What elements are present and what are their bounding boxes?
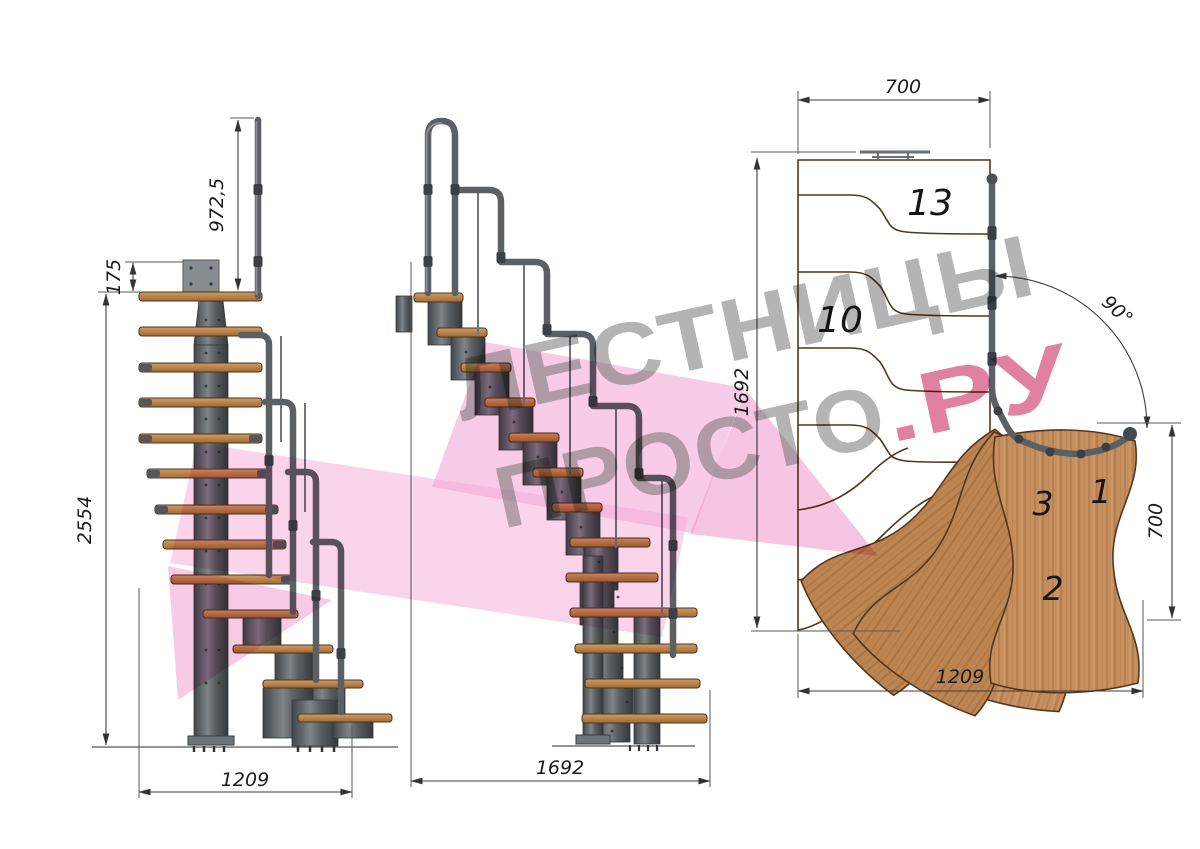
dim-handrail-height: 972,5 xyxy=(206,178,228,232)
step-label-2: 2 xyxy=(1043,569,1064,608)
column-base-flange xyxy=(188,736,234,745)
dim-turn-angle: 90° xyxy=(1097,291,1137,330)
dim-lower-flight-run: 1209 xyxy=(936,666,984,688)
wall-bracket xyxy=(396,296,412,332)
step-label-13: 13 xyxy=(907,183,953,224)
step-label-1: 1 xyxy=(1091,472,1112,511)
support-column-1-flange xyxy=(576,735,610,744)
dim-total-run: 1692 xyxy=(536,757,584,779)
dim-plate-offset: 175 xyxy=(103,259,125,295)
dim-upper-flight-width: 700 xyxy=(885,76,921,98)
drawing-canvas: 2554 175 972,5 1209 xyxy=(0,0,1200,849)
dim-lower-flight-width: 700 xyxy=(1145,503,1167,539)
dim-total-height: 2554 xyxy=(74,496,96,544)
staircase-technical-drawing: 2554 175 972,5 1209 xyxy=(0,0,1200,849)
dim-base-width: 1209 xyxy=(221,769,269,791)
plan-wall-bracket xyxy=(860,152,930,160)
step-label-3: 3 xyxy=(1033,484,1054,523)
top-mounting-plate xyxy=(183,260,219,292)
